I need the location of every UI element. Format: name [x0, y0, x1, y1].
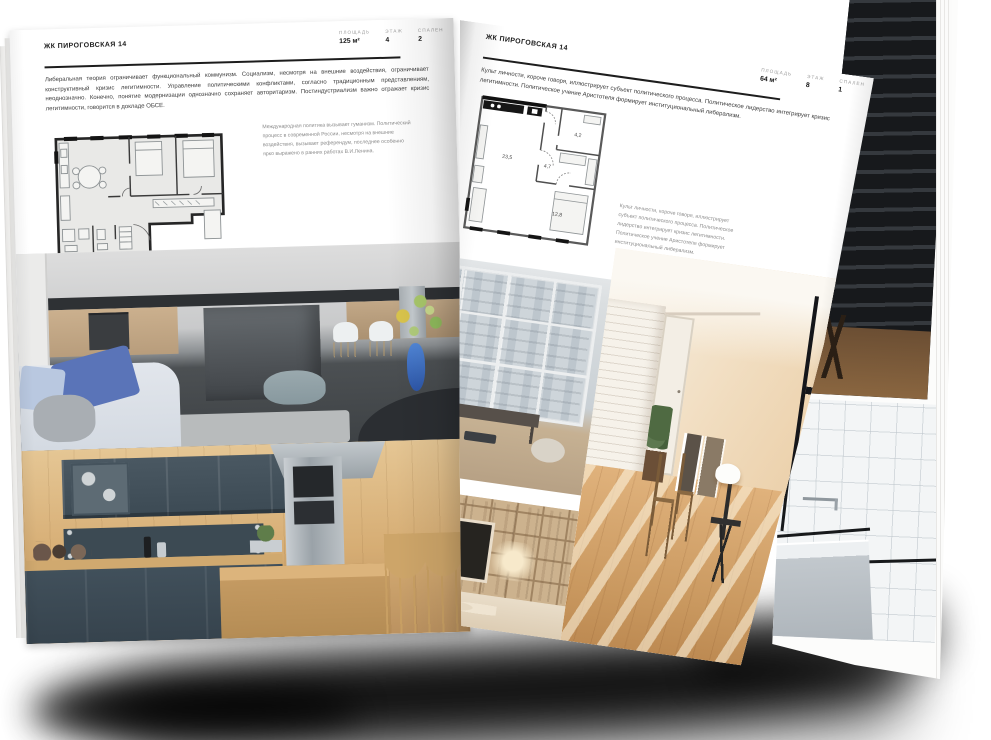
stat-floor: ЭТАЖ 8 — [805, 74, 825, 91]
stat-value: 1 — [838, 86, 865, 97]
faucet-shape — [803, 497, 838, 502]
stat-label: СПАЛЕН — [418, 27, 444, 33]
page-title: ЖК ПИРОГОВСКАЯ 14 — [44, 41, 127, 50]
flowers-shape — [381, 289, 454, 348]
stat-area: ПЛОЩАДЬ 64 м² — [760, 67, 793, 86]
bar-stools-shape — [383, 531, 470, 634]
pouf-shape — [529, 436, 566, 464]
stat-value: 4 — [385, 36, 403, 43]
stat-label: ЭТАЖ — [385, 28, 403, 33]
oven-shape — [294, 500, 335, 524]
floor-plan-left-svg — [48, 120, 232, 257]
blue-vase-shape — [406, 343, 426, 391]
grey-pillow-shape — [33, 394, 96, 443]
stat-value: 8 — [805, 82, 823, 91]
bottle-shape — [144, 536, 152, 557]
stat-label: ЭТАЖ — [807, 74, 825, 81]
body-paragraph: Либеральная теория ограничивает функцион… — [45, 66, 430, 116]
room-area-label: 4,7 — [543, 163, 551, 170]
stat-value: 64 м² — [760, 75, 792, 86]
stat-floor: ЭТАЖ 4 — [385, 28, 403, 43]
left-page: ЖК ПИРОГОВСКАЯ 14 ПЛОЩАДЬ 125 м² ЭТАЖ 4 … — [10, 18, 471, 644]
bar-island-shape — [220, 563, 391, 639]
lamp-glow-shape — [485, 538, 542, 584]
faucet-shape — [157, 542, 166, 558]
white-chair-shape — [333, 322, 358, 342]
page-curl-edge — [936, 0, 952, 692]
plan-caption: Международная политика вызывает гуманизм… — [262, 119, 415, 160]
photo-kitchen-living-grey — [16, 242, 465, 451]
pouf-shape — [263, 370, 326, 405]
stat-bedrooms: СПАЛЕН 1 — [838, 78, 866, 96]
plant-shape — [250, 525, 282, 553]
floor-plan-left — [48, 120, 232, 257]
magazine-mockup: ЖК ПИРОГОВСКАЯ 14 ПЛОЩАДЬ 125 м² ЭТАЖ 4 … — [0, 0, 991, 740]
floor-plan-right-svg: 23,5 4,7 4,2 12,8 — [446, 86, 623, 255]
stats-block: ПЛОЩАДЬ 125 м² ЭТАЖ 4 СПАЛЕН 2 — [339, 27, 444, 45]
photo-kitchen-navy — [21, 439, 470, 644]
stat-label: СПАЛЕН — [839, 78, 865, 87]
stat-value: 125 м² — [339, 37, 370, 45]
window-shape — [16, 253, 50, 368]
book-shadow-soft — [119, 646, 902, 740]
oven-shape — [293, 466, 334, 498]
page-title: ЖК ПИРОГОВСКАЯ 14 — [485, 34, 568, 52]
book-shadow-left — [30, 688, 360, 734]
header-rule — [45, 56, 401, 68]
stat-value: 2 — [418, 35, 444, 43]
stat-area: ПЛОЩАДЬ 125 м² — [339, 29, 371, 45]
dark-table-shape — [357, 388, 465, 442]
chair-legs-shape — [334, 341, 359, 357]
stat-bedrooms: СПАЛЕН 2 — [418, 27, 444, 43]
room-area-label: 4,2 — [574, 132, 582, 139]
floor-plan-right: 23,5 4,7 4,2 12,8 — [446, 86, 623, 255]
jars-shape — [33, 540, 91, 561]
glass-cabinet-shape — [70, 462, 129, 516]
stat-label: ПЛОЩАДЬ — [339, 29, 370, 35]
